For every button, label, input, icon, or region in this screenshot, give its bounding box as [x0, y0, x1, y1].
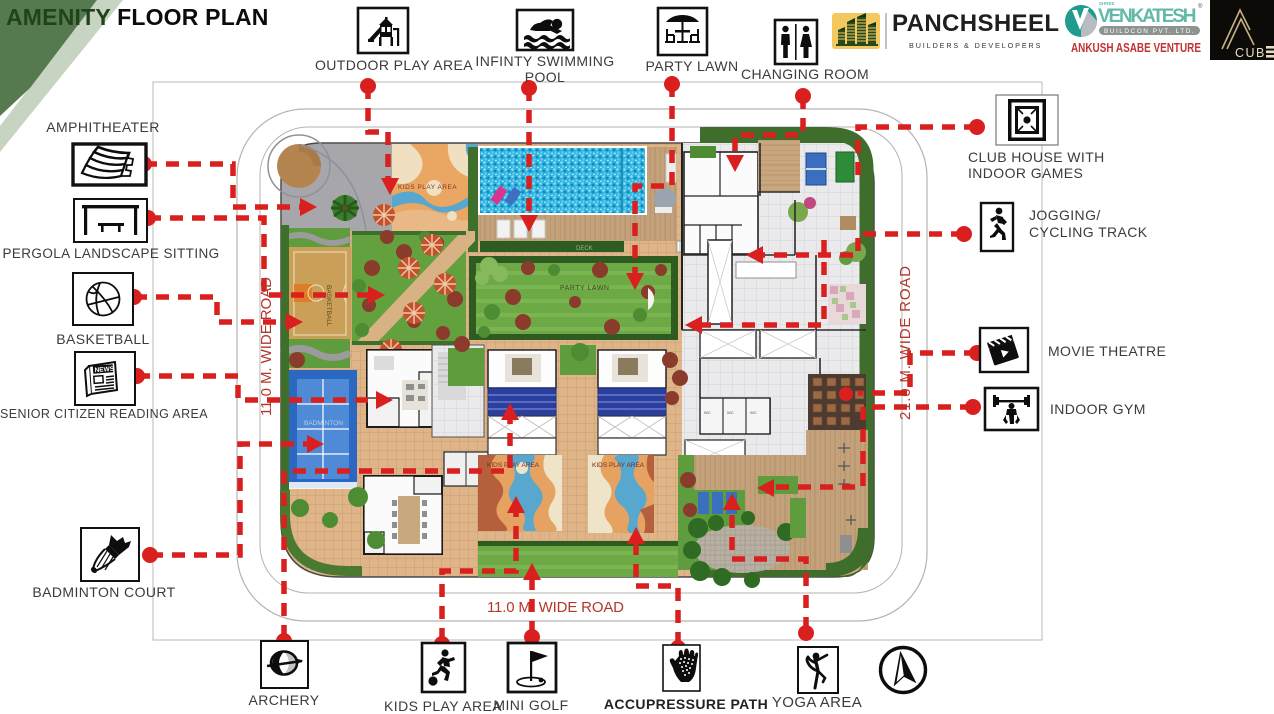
svg-text:VENKATESH: VENKATESH [1098, 6, 1197, 27]
svg-text:BUILDERS & DEVELOPERS: BUILDERS & DEVELOPERS [909, 41, 1043, 50]
svg-text:BUILDCON PVT. LTD.: BUILDCON PVT. LTD. [1104, 28, 1195, 35]
svg-text:ANKUSH ASABE VENTURE: ANKUSH ASABE VENTURE [1071, 40, 1201, 55]
svg-text:NEWS: NEWS [94, 366, 115, 374]
svg-text:PANCHSHEEL: PANCHSHEEL [892, 10, 1059, 37]
svg-text:CUB: CUB [1235, 46, 1266, 60]
svg-text:®: ® [1198, 3, 1203, 10]
